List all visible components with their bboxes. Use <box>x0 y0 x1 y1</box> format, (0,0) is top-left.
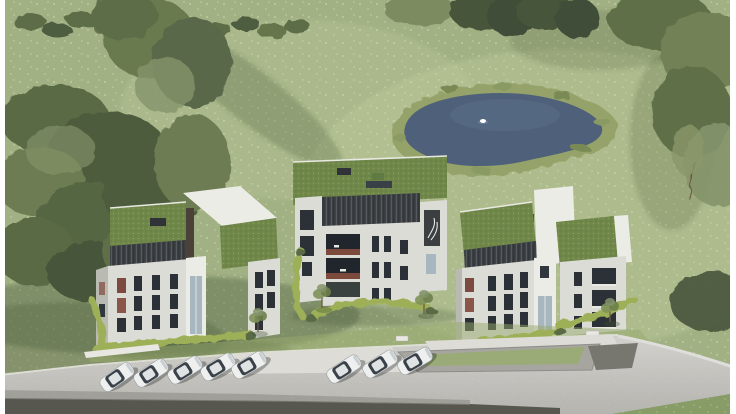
window <box>540 266 549 278</box>
frame-bar-left <box>0 0 5 414</box>
swan <box>480 119 486 123</box>
pond-reflection <box>450 99 560 131</box>
deck-furniture <box>334 245 339 248</box>
window-red-accent <box>117 298 126 313</box>
skylight <box>337 168 351 175</box>
skylight <box>366 181 392 188</box>
park-bench <box>396 336 408 341</box>
window-red-accent <box>465 298 474 312</box>
balconies <box>326 234 360 297</box>
aerial-render <box>0 0 736 414</box>
balcony-opening <box>326 282 360 297</box>
window-red-accent <box>117 278 126 293</box>
frame-bar-right <box>730 0 736 414</box>
render-canvas <box>0 0 736 414</box>
skylight <box>150 218 166 226</box>
garage-entrance <box>588 343 638 370</box>
deck-furniture <box>340 269 346 272</box>
roof-box <box>372 173 384 180</box>
window-red-accent <box>99 282 105 295</box>
tower-windows <box>300 210 314 276</box>
window-red-accent <box>465 278 474 292</box>
art-panel <box>424 210 440 246</box>
balcony-deck <box>326 273 360 279</box>
wing-facade <box>248 258 280 339</box>
balcony-deck <box>326 249 360 255</box>
tower-glass <box>426 254 436 274</box>
